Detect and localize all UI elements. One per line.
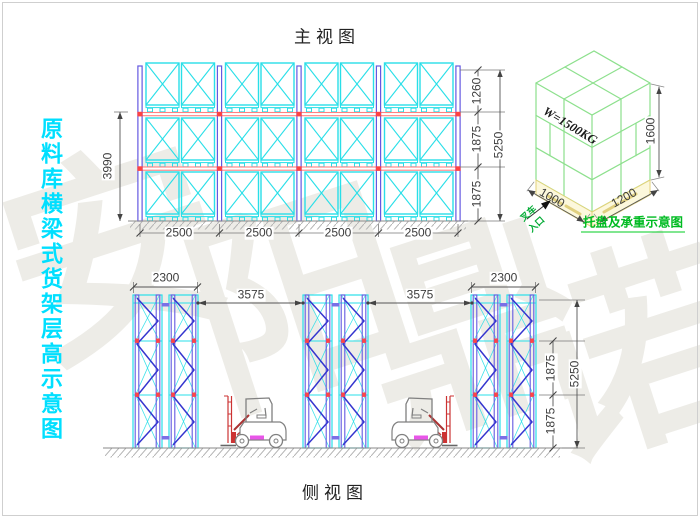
dim-label-side-1875-mid: 1875 bbox=[545, 354, 558, 383]
front-view-drawing bbox=[114, 63, 505, 237]
cad-drawing bbox=[0, 0, 700, 518]
dim-label-5250-front: 5250 bbox=[493, 131, 506, 160]
left-vertical-caption: 原料库横梁式货架层高示意图 bbox=[39, 117, 61, 442]
dim-label-bay4: 2500 bbox=[404, 227, 433, 240]
forklift-right bbox=[392, 396, 458, 448]
dim-label-1875-mid: 1875 bbox=[471, 125, 484, 154]
dim-label-bay1: 2500 bbox=[165, 227, 194, 240]
dim-label-bay3: 2500 bbox=[324, 227, 353, 240]
dim-label-5250-side: 5250 bbox=[569, 360, 582, 389]
dim-label-bay2: 2500 bbox=[245, 227, 274, 240]
dim-label-1600: 1600 bbox=[645, 117, 658, 146]
side-ground-hatch bbox=[105, 449, 560, 458]
drawing-page: 安 阳 鼎 诺 原料库横梁式货架层高示意图 bbox=[0, 0, 700, 518]
dim-label-3575-right: 3575 bbox=[406, 289, 435, 302]
dim-label-2300-left: 2300 bbox=[152, 272, 181, 285]
front-dim-3990 bbox=[114, 112, 128, 221]
dim-label-3575-left: 3575 bbox=[237, 289, 266, 302]
dim-label-side-1875-bot: 1875 bbox=[545, 407, 558, 436]
pallet-diagram-caption: 托盘及承重示意图 bbox=[581, 212, 685, 233]
side-view-drawing bbox=[103, 282, 585, 458]
side-view-title: 侧视图 bbox=[302, 479, 368, 504]
dim-label-2300-right: 2300 bbox=[490, 272, 519, 285]
front-view-title: 主视图 bbox=[294, 23, 360, 48]
dim-label-3990: 3990 bbox=[102, 152, 115, 181]
forklift-left bbox=[221, 396, 287, 448]
dim-label-1875-bot: 1875 bbox=[471, 180, 484, 209]
dim-label-1260: 1260 bbox=[471, 77, 484, 106]
